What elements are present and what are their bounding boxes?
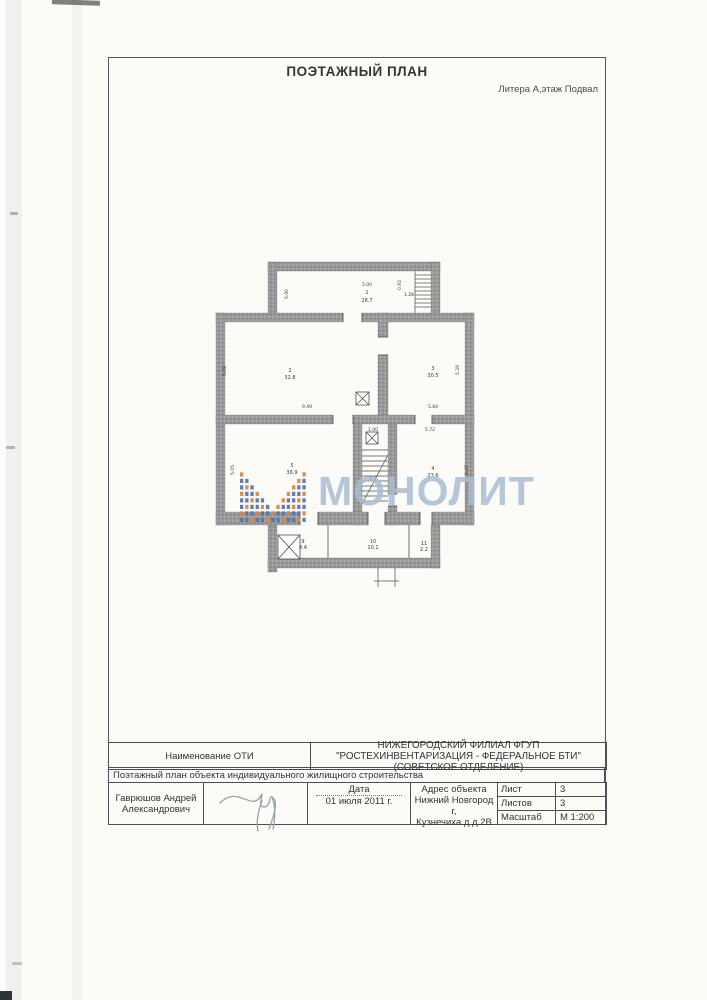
dim-label: 5.29: [455, 365, 461, 375]
room-number: 3: [431, 366, 434, 372]
scan-artifact: [10, 212, 18, 215]
dim-label: 5.00: [362, 282, 372, 288]
room-area: 30.5: [427, 373, 438, 379]
room-area: 36.9: [286, 470, 297, 476]
scale-label: Масштаб: [498, 811, 556, 824]
dim-label: 9.49: [302, 404, 312, 410]
dim-label: 5.72: [425, 427, 435, 433]
room-number: 1: [365, 290, 368, 296]
room-number: 5: [290, 463, 293, 469]
scale-row: Масштаб М 1:200: [498, 811, 606, 824]
floor-plan-drawing: 1 28.7 2 32.8 3 30.5 4 23.6 5 36.9 9 8.4…: [210, 258, 482, 594]
signature: [212, 777, 307, 832]
room-area: 8.4: [299, 545, 307, 551]
sheets-value: 3: [556, 797, 606, 810]
litera-floor-label: Литера А,этаж Подвал: [498, 84, 598, 95]
address-cell: Адрес объекта Нижний Новгород г, Кузнечи…: [411, 783, 498, 824]
sheets-label: Листов: [498, 797, 556, 810]
executor-name: Гаврюшов Андрей Александрович: [109, 783, 204, 824]
sheets-row: Листов 3: [498, 797, 606, 811]
dim-label: 5.90: [284, 289, 290, 299]
oti-value: НИЖЕГОРОДСКИЙ ФИЛИАЛ ФГУП "РОСТЕХИНВЕНТА…: [311, 743, 606, 769]
address-line1: Нижний Новгород г,: [411, 795, 497, 817]
dim-label: 5.08: [222, 366, 228, 376]
dim-label: 4.47: [464, 465, 470, 475]
room-area: 32.8: [284, 375, 295, 381]
room-area: 10.1: [367, 545, 378, 551]
entrance-marks: [374, 568, 399, 587]
date-value: 01 июля 2011 г.: [326, 796, 393, 807]
dim-label: 0.92: [397, 280, 403, 290]
walls: [216, 262, 474, 572]
room-area: 23.6: [427, 473, 438, 479]
scan-artifact: [0, 991, 12, 1000]
scan-artifact: [6, 446, 15, 449]
dim-label: 1.28: [404, 292, 414, 298]
sheet-value: 3: [556, 783, 606, 796]
stairs-upper-icon: [415, 271, 431, 313]
room-number: 4: [431, 466, 434, 472]
dim-label: 5.05: [230, 465, 236, 475]
sheet-label: Лист: [498, 783, 556, 796]
sheet-info-block: Лист 3 Листов 3 Масштаб М 1:200: [498, 783, 606, 824]
dim-label: 2.6: [369, 476, 376, 482]
details-row: Гаврюшов Андрей Александрович Дата 01 ию…: [108, 782, 607, 825]
room-area: 28.7: [361, 298, 372, 304]
signature-cell: [204, 783, 308, 824]
scan-artifact: [52, 0, 100, 6]
scale-value: М 1:200: [556, 811, 606, 824]
room-number: 2: [288, 368, 291, 374]
room-area: 2.2: [420, 547, 428, 553]
scanned-page: ПОЭТАЖНЫЙ ПЛАН Литера А,этаж Подвал: [0, 0, 707, 1000]
address-line2: Кузнечиха д д.2В: [416, 817, 492, 828]
address-label: Адрес объекта: [421, 784, 486, 795]
dim-label: 1.00: [368, 427, 378, 433]
scan-artifact: [12, 962, 22, 965]
scan-streak: [72, 0, 82, 1000]
document-type-row: Поэтажный план объекта индивидуального ж…: [108, 767, 605, 783]
oti-row: Наименование ОТИ НИЖЕГОРОДСКИЙ ФИЛИАЛ ФГ…: [108, 742, 607, 770]
title-block-table: Наименование ОТИ НИЖЕГОРОДСКИЙ ФИЛИАЛ ФГ…: [108, 742, 605, 823]
sheet-row: Лист 3: [498, 783, 606, 797]
scan-streak: [6, 0, 22, 1000]
dim-label: 5.84: [428, 404, 438, 410]
date-label: Дата: [316, 784, 402, 796]
date-cell: Дата 01 июля 2011 г.: [308, 783, 411, 824]
page-title: ПОЭТАЖНЫЙ ПЛАН: [109, 64, 605, 79]
oti-label: Наименование ОТИ: [109, 743, 311, 769]
